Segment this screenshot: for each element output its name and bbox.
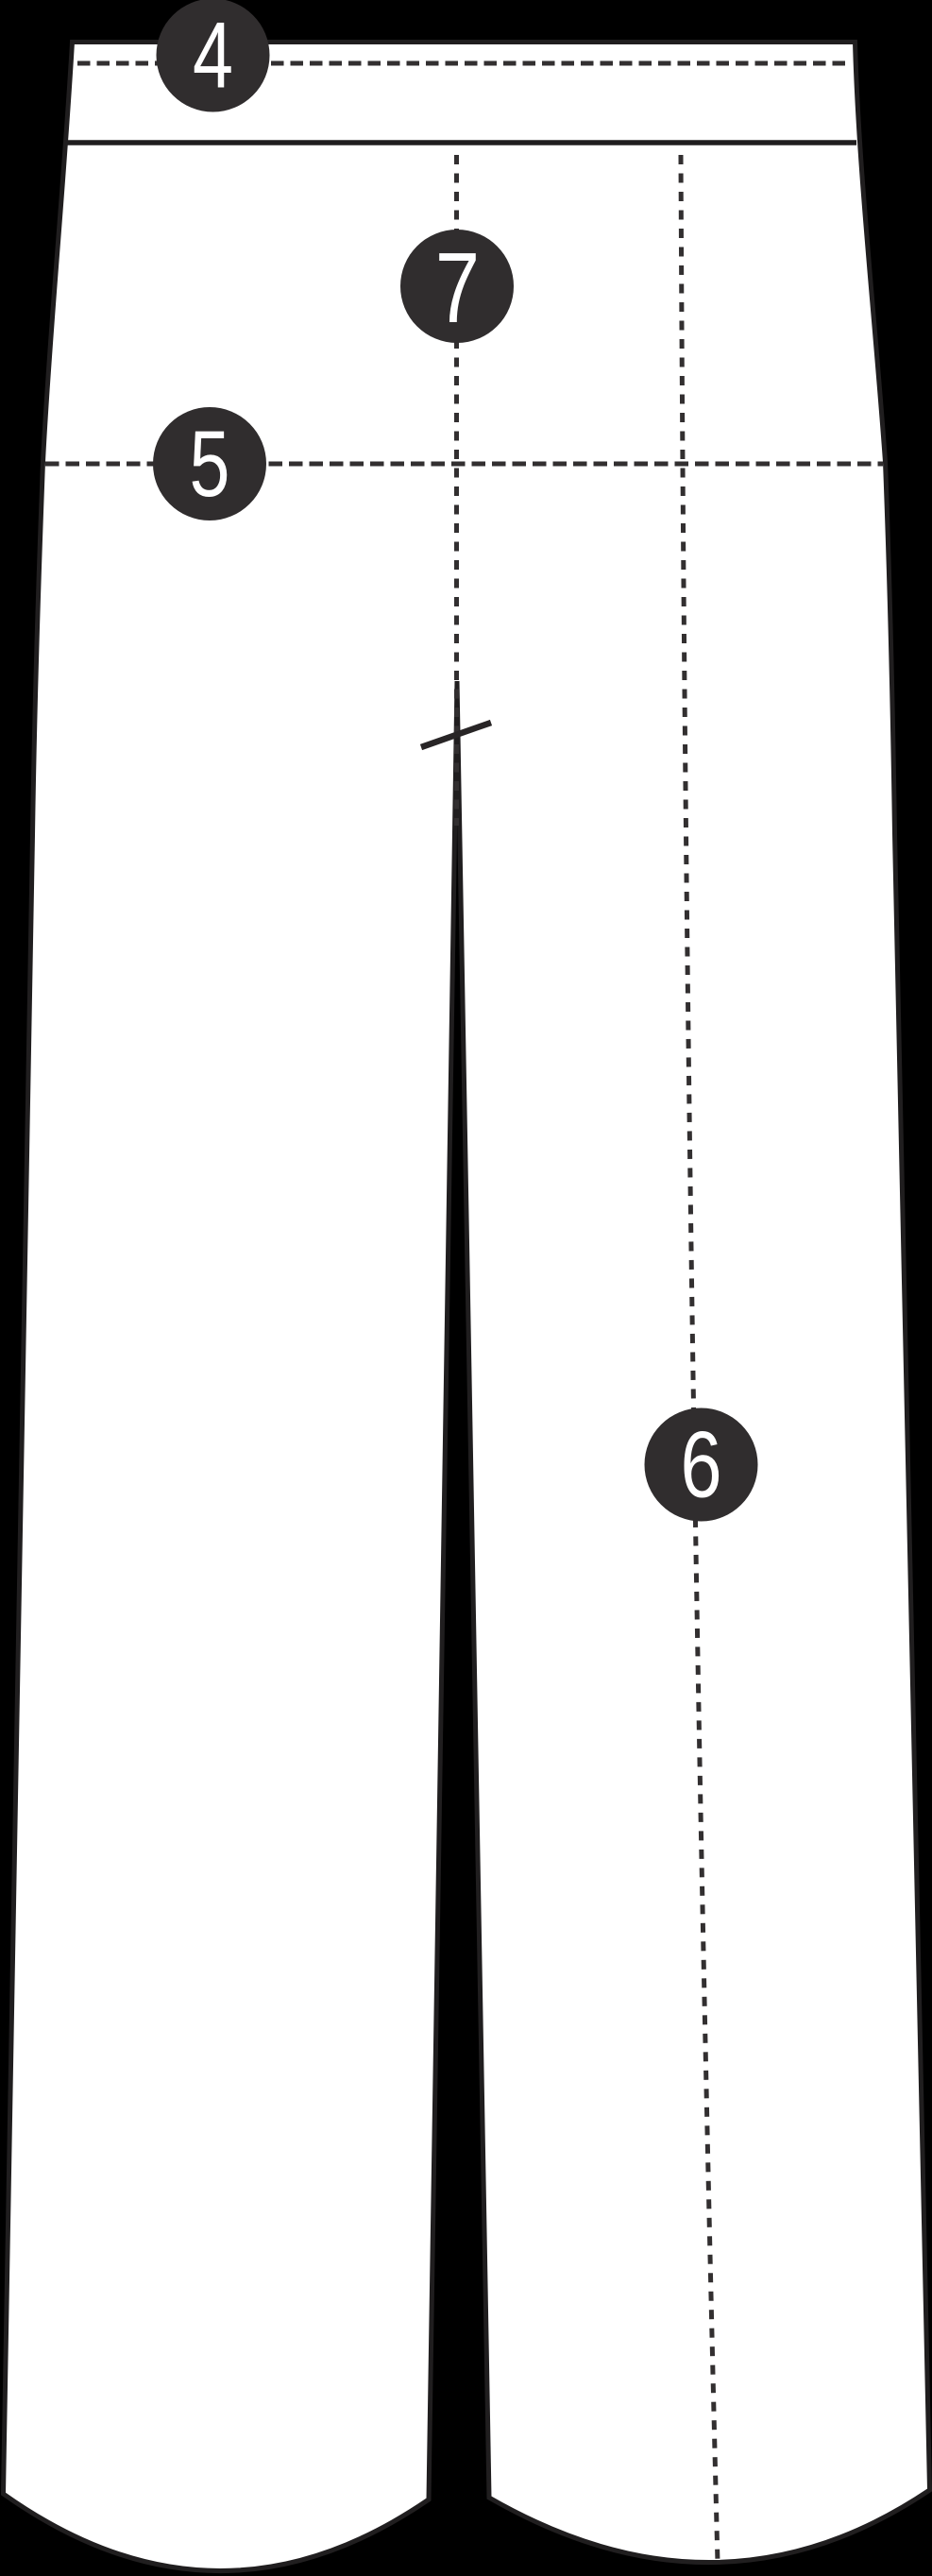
svg-text:6: 6	[680, 1412, 721, 1516]
svg-text:7: 7	[435, 232, 480, 344]
svg-text:5: 5	[190, 412, 230, 516]
svg-text:4: 4	[193, 3, 233, 107]
